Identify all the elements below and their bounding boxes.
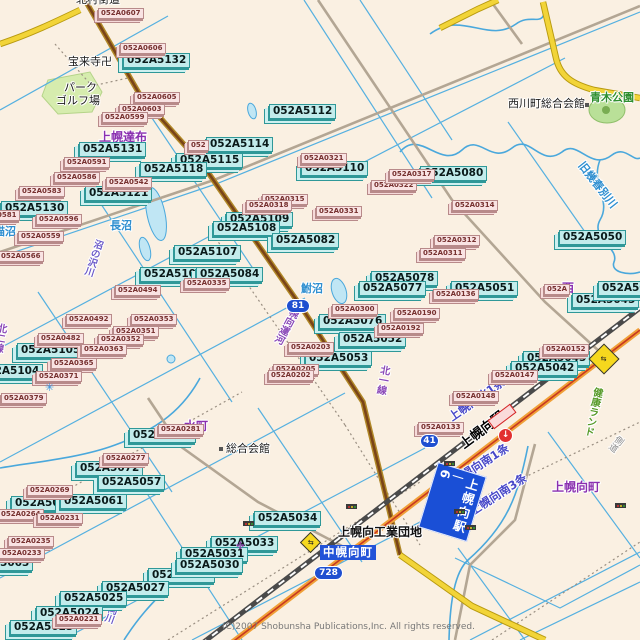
parcel-label-cyan[interactable]: 052A5121 xyxy=(85,186,152,201)
place-label: 総合会館 xyxy=(226,443,270,454)
parcel-label-cyan[interactable]: 052A5118 xyxy=(140,162,207,177)
parcel-label-pink[interactable]: 052A0494 xyxy=(115,285,161,296)
parcel-label-cyan[interactable]: 052A5076 xyxy=(319,314,386,329)
parcel-label-cyan[interactable]: 052A5108 xyxy=(213,221,280,236)
place-label: 宝来寺卍 xyxy=(68,56,112,67)
parcel-label-pink[interactable]: 052A0363 xyxy=(81,344,127,355)
parcel-label-cyan[interactable]: 052A5030 xyxy=(176,558,243,573)
station-banner-number: 6 xyxy=(436,468,453,483)
parcel-label-pink[interactable]: 052A0317 xyxy=(389,169,435,180)
parcel-label-pink[interactable]: 052A0605 xyxy=(134,92,180,103)
parcel-label-pink[interactable]: 052A0566 xyxy=(0,251,44,262)
town-banner: 中幌向町 xyxy=(320,545,376,560)
map-canvas[interactable]: 052A5132052A5112052A5114052A5131052A5115… xyxy=(0,0,640,640)
parcel-label-pink[interactable]: 052A0203 xyxy=(288,342,334,353)
building-marker-icon xyxy=(585,103,589,107)
parcel-label-cyan[interactable]: 052A5057 xyxy=(98,475,165,490)
parcel-label-pink[interactable]: 052A0586 xyxy=(54,172,100,183)
traffic-signal-icon xyxy=(465,525,476,530)
place-label: 上幌向町 xyxy=(552,481,600,493)
parcel-label-pink[interactable]: 052A0482 xyxy=(38,333,84,344)
parcel-label-pink[interactable]: 052A0353 xyxy=(131,314,177,325)
place-label: パーク xyxy=(64,82,97,93)
parcel-label-pink[interactable]: 052A xyxy=(544,284,570,295)
place-label: 北村街道 xyxy=(76,0,120,5)
parcel-label-pink[interactable]: 052A0379 xyxy=(1,393,47,404)
place-label: 猫沼 xyxy=(0,226,16,237)
parcel-label-pink[interactable]: 052A0596 xyxy=(36,214,82,225)
parcel-label-cyan[interactable]: 052A5082 xyxy=(272,233,339,248)
parcel-label-pink[interactable]: 052A0231 xyxy=(37,513,83,524)
parcel-label-cyan[interactable]: 052A5132 xyxy=(123,53,190,68)
copyright-notice: (C)2007 Shobunsha Publications,Inc. All … xyxy=(222,622,475,632)
parcel-label-cyan[interactable]: 052A5114 xyxy=(206,137,273,152)
parcel-label-pink[interactable]: 052A0147 xyxy=(492,370,538,381)
place-label: 長沼 xyxy=(110,220,132,231)
floodgate-icon: ✳ xyxy=(45,382,54,393)
parcel-label-pink[interactable]: 052A0235 xyxy=(8,536,54,547)
traffic-signal-icon xyxy=(615,503,626,508)
parcel-label-pink[interactable]: 052A0492 xyxy=(66,314,112,325)
parcel-label-pink[interactable]: 052A0591 xyxy=(64,157,110,168)
parcel-label-pink[interactable]: 052A0542 xyxy=(106,177,152,188)
parcel-label-pink[interactable]: 052A0599 xyxy=(102,112,148,123)
parcel-label-pink[interactable]: 052A0365 xyxy=(51,358,97,369)
parcel-label-pink[interactable]: 052A0136 xyxy=(433,289,479,300)
parcel-label-cyan[interactable]: 052A5112 xyxy=(269,104,336,119)
parcel-label-pink[interactable]: 052A0607 xyxy=(98,8,144,19)
parcel-label-pink[interactable]: 052A0371 xyxy=(36,371,82,382)
route-badge: 41 xyxy=(420,434,439,448)
parcel-label-pink[interactable]: 052A0221 xyxy=(56,614,102,625)
parcel-label-pink[interactable]: 052A0321 xyxy=(301,153,347,164)
parcel-label-pink[interactable]: 052A0300 xyxy=(332,304,378,315)
parcel-label-pink[interactable]: 052A0190 xyxy=(394,308,440,319)
parcel-label-pink[interactable]: 052A0152 xyxy=(543,344,589,355)
parcel-label-pink[interactable]: 052A0318 xyxy=(246,200,292,211)
parcel-label-cyan[interactable]: 052A5107 xyxy=(174,245,241,260)
parcel-label-pink[interactable]: 052A0322 xyxy=(371,180,417,191)
parcel-label-pink[interactable]: 052A0583 xyxy=(19,186,65,197)
parcel-label-cyan[interactable]: 052A5050 xyxy=(559,230,626,245)
parcel-label-cyan[interactable]: 052A5052 xyxy=(339,332,406,347)
place-label: 鮒沼 xyxy=(301,283,323,294)
parcel-label-pink[interactable]: 052A0281 xyxy=(158,424,204,435)
parcel-label-pink[interactable]: 052A0202 xyxy=(268,370,314,381)
place-label: 西川町総合会館 xyxy=(508,98,585,109)
place-label: ゴルフ場 xyxy=(56,95,100,106)
traffic-signal-icon xyxy=(444,461,455,466)
parcel-label-pink[interactable]: 052A0277 xyxy=(103,453,149,464)
building-marker-icon xyxy=(219,447,223,451)
route-badge: 728 xyxy=(314,566,343,580)
parcel-label-cyan[interactable]: 052A5131 xyxy=(79,142,146,157)
route-badge: 81 xyxy=(286,299,310,313)
parcel-label-cyan[interactable]: 052A5025 xyxy=(60,591,127,606)
parcel-label-pink[interactable]: 052A0133 xyxy=(418,422,464,433)
parcel-label-cyan[interactable]: 052A5077 xyxy=(359,281,426,296)
landmark-icon: ✤ xyxy=(236,542,244,552)
parcel-label-pink[interactable]: 052A0192 xyxy=(378,323,424,334)
red-arrow-marker-icon: ↓ xyxy=(498,428,513,443)
parcel-label-cyan[interactable]: 052A5046 xyxy=(598,281,640,296)
parcel-label-cyan[interactable]: 052A5061 xyxy=(60,494,127,509)
parcel-label-pink[interactable]: 052A0581 xyxy=(0,210,20,221)
parcel-label-pink[interactable]: 052A0606 xyxy=(120,43,166,54)
traffic-signal-icon xyxy=(243,521,254,526)
parcel-label-cyan[interactable]: 052A5105 xyxy=(17,343,84,358)
parcel-label-pink[interactable]: 052A0314 xyxy=(452,200,498,211)
place-label: 上幌向工業団地 xyxy=(338,526,422,538)
parcel-label-cyan[interactable]: 052A5034 xyxy=(254,511,321,526)
place-label: 青木公園 xyxy=(590,92,634,103)
parcel-label-pink[interactable]: 052A0312 xyxy=(434,235,480,246)
town-banner-label: 中幌向町 xyxy=(323,545,373,559)
parcel-label-pink[interactable]: 052A0148 xyxy=(453,391,499,402)
traffic-signal-icon xyxy=(454,509,465,514)
parcel-label-pink[interactable]: 052 xyxy=(188,140,209,151)
traffic-signal-icon xyxy=(346,504,357,509)
parcel-label-pink[interactable]: 052A0269 xyxy=(27,485,73,496)
parcel-label-pink[interactable]: 052A0331 xyxy=(316,206,362,217)
parcel-label-pink[interactable]: 052A0559 xyxy=(18,231,64,242)
parcel-label-pink[interactable]: 052A0233 xyxy=(0,548,45,559)
parcel-label-pink[interactable]: 052A0311 xyxy=(420,248,466,259)
parcel-label-pink[interactable]: 052A0335 xyxy=(184,278,230,289)
